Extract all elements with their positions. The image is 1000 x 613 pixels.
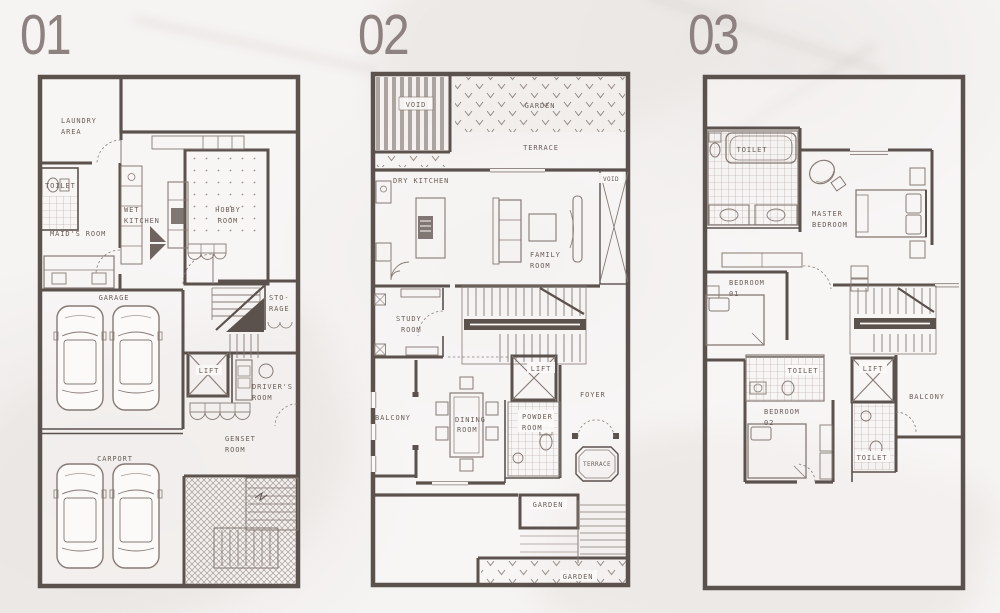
room-label-family-room: FAMILY [530,251,561,259]
room-label-garden-mid: GARDEN [533,501,564,509]
garden-lower-planting [481,561,626,583]
room-label-garden: GARDEN [525,102,556,110]
room-label-study-room: STUDY [396,315,422,323]
hobby-carpet [188,153,265,241]
room-label-balcony: BALCONY [375,414,411,422]
room-label-garage: GARAGE [99,294,130,302]
room-label-dining-room: ROOM [457,426,477,434]
room-label-foyer: FOYER [580,391,606,399]
floor-plan-01: LAUNDRY AREA TOILET MAID'S ROOM WET KITC… [40,77,298,586]
room-label-dry-kitchen: DRY KITCHEN [393,177,449,185]
floor-plans-drawing: LAUNDRY AREA TOILET MAID'S ROOM WET KITC… [0,0,1000,613]
terrace-planting [376,154,448,167]
room-label-hobby-room: HOBBY [215,206,241,214]
room-label-laundry-area: AREA [61,128,81,136]
toilet-2-fixtures [746,355,824,401]
room-label-dining-room: DINING [455,416,486,424]
floor-plan-03: TOILET MASTER BEDROOM BEDROOM 01 TOILET … [705,77,963,588]
room-label-storage: STO- [269,294,289,302]
room-label-toilet-2: TOILET [788,367,819,375]
room-label-drivers-room: ROOM [252,394,272,402]
room-label-family-room: ROOM [530,262,550,270]
room-label-study-room: ROOM [401,326,421,334]
room-label-terrace-inner: TERRACE [583,461,611,468]
room-label-void-side: VOID [603,176,619,183]
room-label-genset-room: ROOM [225,446,245,454]
room-label-powder-room: ROOM [522,424,542,432]
car-icon [110,464,162,568]
void-stripes [376,77,448,150]
room-label-drivers-room: DRIVER'S [252,383,293,391]
room-label-bedroom-01: BEDROOM [729,279,765,287]
floor-plan-sheet: 01 02 03 [0,0,1000,613]
room-label-toilet-master: TOILET [737,146,768,154]
room-label-toilet: TOILET [45,182,76,190]
room-label-garden-lower: GARDEN [563,573,594,581]
room-label-toilet-3: TOILET [857,454,888,462]
room-label-master-bedroom: MASTER [812,210,843,218]
room-label-hobby-room: ROOM [218,217,238,225]
car-icon [54,464,106,568]
room-label-terrace: TERRACE [523,144,559,152]
entry-stairs [186,478,298,584]
room-label-maids-room: MAID'S ROOM [50,230,106,238]
room-label-lift: LIFT [863,365,883,373]
room-label-bedroom-02: 02 [764,419,774,427]
room-label-lift: LIFT [199,367,219,375]
room-label-powder-room: POWDER [522,413,553,421]
room-label-wet-kitchen: WET [124,206,139,214]
room-label-void: VOID [406,101,426,109]
room-label-storage: RAGE [269,305,289,313]
room-label-master-bedroom: BEDROOM [812,221,848,229]
car-icon [110,306,162,410]
room-label-genset-room: GENSET [225,435,256,443]
floor-plan-02: VOID GARDEN TERRACE DRY KITCHEN VOID FAM… [370,74,628,585]
room-label-bedroom-02: BEDROOM [764,408,800,416]
car-icon [54,306,106,410]
toilet-tiles [42,196,77,229]
room-label-wet-kitchen: KITCHEN [124,217,160,225]
room-label-laundry-area: LAUNDRY [61,117,97,125]
room-label-carport: CARPORT [97,455,133,463]
room-label-lift: LIFT [531,365,551,373]
room-label-balcony: BALCONY [909,393,945,401]
room-label-bedroom-01: 01 [729,290,739,298]
